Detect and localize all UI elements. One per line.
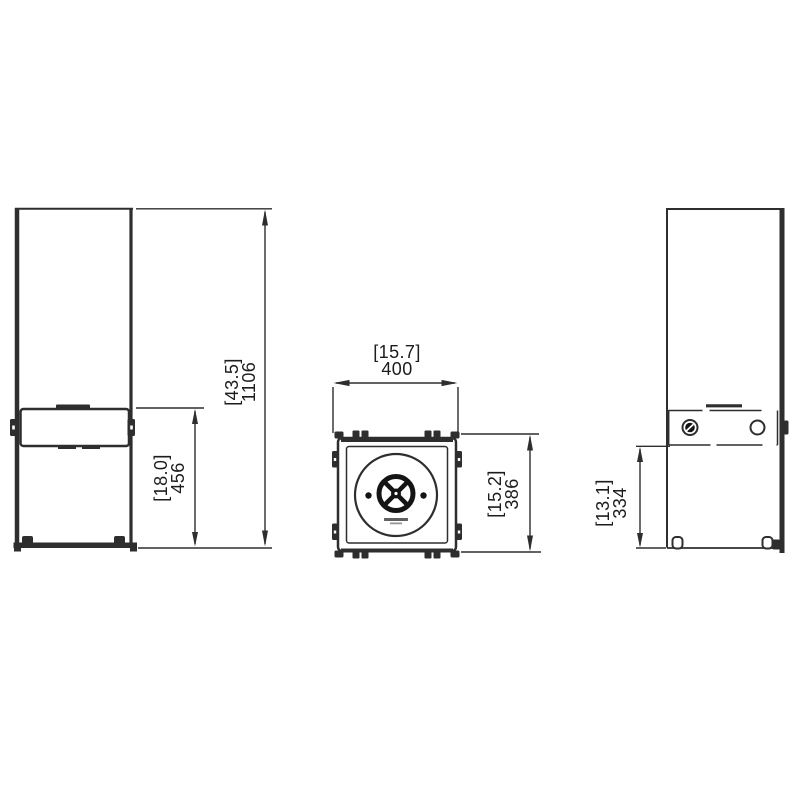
front-burner-panel (10, 405, 135, 448)
top-view (332, 431, 462, 559)
side-panel-clip (783, 421, 789, 435)
side-burner-panel (669, 406, 789, 445)
burner-knob-icon (379, 477, 413, 511)
dim-depth-label: [15.2] 386 (487, 470, 521, 517)
drawing-linework (0, 0, 800, 800)
front-view-outline (15, 208, 133, 545)
dim-overall-height-mm: 1106 (241, 362, 258, 402)
dim-overall-height-label: [43.5] 1106 (224, 358, 258, 405)
burner-screw-right (420, 492, 426, 498)
dim-side-panel-height-label: [13.1] 334 (595, 479, 629, 526)
fuel-gauge-icon (683, 420, 698, 435)
access-hole (751, 421, 765, 435)
side-view (666, 208, 789, 553)
dim-depth-mm: 386 (504, 478, 521, 509)
technical-drawing: [43.5] 1106 [18.0] 456 [15.7] 400 [15.2]… (0, 0, 800, 800)
dim-front-panel-height-mm: 456 (170, 462, 187, 493)
dim-width-mm: 400 (381, 361, 412, 378)
dim-side-panel-height (636, 446, 670, 548)
dim-front-panel-height-label: [18.0] 456 (153, 454, 187, 501)
front-view (10, 208, 137, 552)
front-panel-tab (56, 405, 90, 410)
side-view-outline (666, 208, 785, 553)
dim-width (333, 380, 458, 433)
front-base (14, 536, 138, 552)
dim-width-label: [15.7] 400 (373, 344, 420, 378)
burner-screw-left (365, 492, 371, 498)
dim-side-panel-height-mm: 334 (612, 487, 629, 518)
